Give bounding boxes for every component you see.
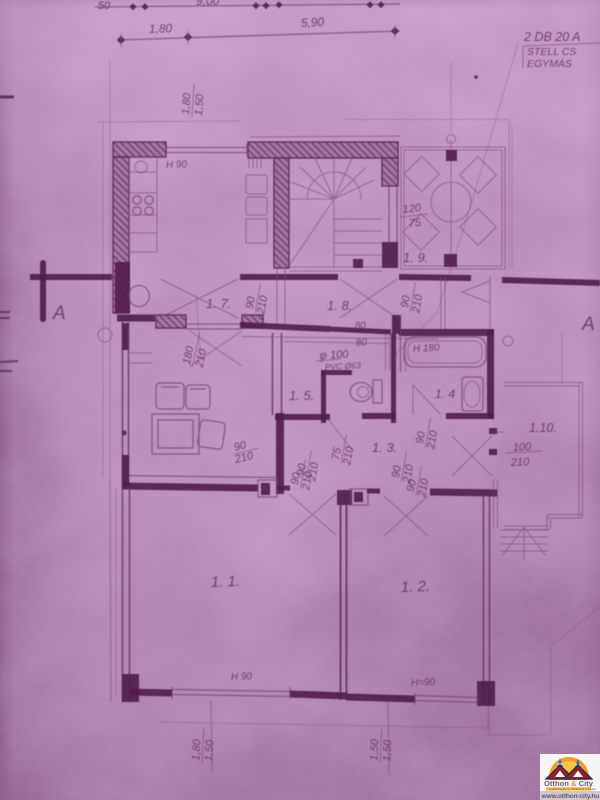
svg-text:1. 3.: 1. 3. bbox=[372, 440, 397, 455]
svg-text:H=90: H=90 bbox=[411, 677, 436, 689]
svg-text:1,80: 1,80 bbox=[149, 21, 173, 36]
svg-text:5,90: 5,90 bbox=[300, 15, 324, 30]
svg-text:1,50: 1,50 bbox=[203, 739, 216, 762]
svg-text:A: A bbox=[581, 314, 595, 335]
svg-text:1. 2.: 1. 2. bbox=[401, 578, 431, 596]
svg-text:1,50: 1,50 bbox=[368, 738, 381, 761]
svg-text:1,80: 1,80 bbox=[180, 92, 194, 115]
svg-text:1. 1.: 1. 1. bbox=[211, 573, 241, 591]
svg-text:A: A bbox=[52, 303, 66, 324]
svg-text:1,80: 1,80 bbox=[190, 738, 203, 761]
svg-text:1.10.: 1.10. bbox=[529, 421, 557, 435]
svg-text:Otthon & City: Otthon & City bbox=[544, 779, 594, 788]
svg-text:2 DB 20 A: 2 DB 20 A bbox=[523, 30, 581, 44]
svg-text:1. 4: 1. 4 bbox=[435, 387, 455, 401]
svg-text:120: 120 bbox=[402, 202, 422, 216]
svg-text:H 180: H 180 bbox=[413, 343, 441, 355]
svg-text:H 90: H 90 bbox=[166, 159, 188, 171]
svg-text:80: 80 bbox=[355, 337, 367, 349]
svg-text:EGYMÁS: EGYMÁS bbox=[527, 57, 572, 70]
svg-text:1. 5.: 1. 5. bbox=[289, 388, 314, 403]
svg-text:H 90: H 90 bbox=[231, 671, 253, 683]
svg-text:Ingatlanforgalmi es Tanacsado: Ingatlanforgalmi es Tanacsado Szolgalat bbox=[549, 787, 596, 791]
svg-text:STELL CS: STELL CS bbox=[527, 46, 576, 58]
svg-text:75: 75 bbox=[408, 217, 422, 230]
svg-text:210: 210 bbox=[510, 456, 531, 469]
svg-text:80: 80 bbox=[354, 320, 366, 332]
svg-text:9,00: 9,00 bbox=[196, 0, 220, 8]
svg-text:1. 8.: 1. 8. bbox=[327, 298, 352, 313]
svg-text:PVC Ø63: PVC Ø63 bbox=[325, 360, 362, 372]
svg-text:www.otthon-city.hu: www.otthon-city.hu bbox=[541, 793, 600, 800]
svg-text:1,50: 1,50 bbox=[381, 739, 394, 762]
svg-text:50: 50 bbox=[98, 0, 111, 12]
svg-text:1. 7.: 1. 7. bbox=[206, 296, 231, 311]
svg-text:1,50: 1,50 bbox=[193, 93, 207, 116]
svg-text:1. 9.: 1. 9. bbox=[403, 250, 428, 265]
